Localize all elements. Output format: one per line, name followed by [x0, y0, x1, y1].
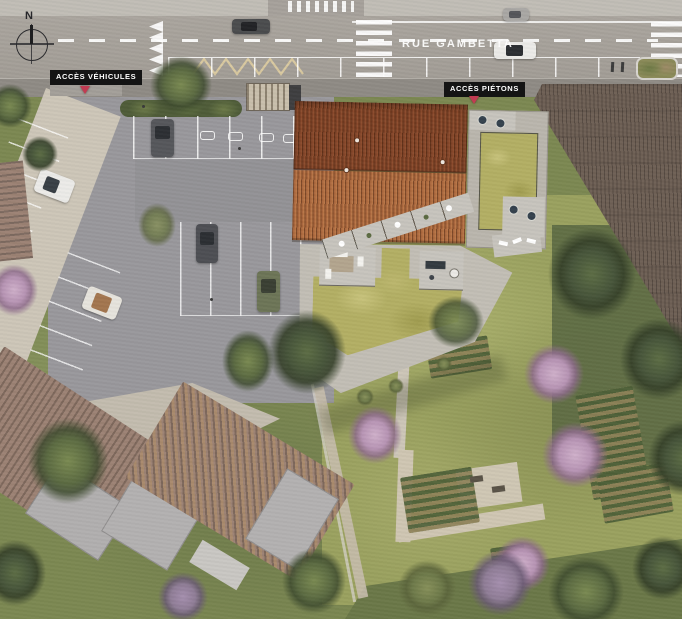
dining-table-dark — [425, 261, 445, 269]
tree-pink-garden-west — [348, 406, 402, 464]
site-plan-render: RUE GAMBETTA N ACCÈS VÉHICULES ACCÈS PIÉ… — [0, 0, 682, 619]
dining-chair-dot — [429, 275, 434, 280]
access-pedestrians-label: ACCÈS PIÉTONS — [444, 82, 525, 97]
vegetable-beds-west — [400, 467, 480, 534]
parked-car-gray-1 — [151, 119, 174, 157]
tree-west-strip-2 — [22, 136, 58, 172]
north-parked-car-glass — [509, 11, 521, 18]
parked-car-gray-2-glass — [200, 232, 214, 245]
loungers-terrace — [492, 230, 542, 258]
parked-car-gray-1-glass — [155, 126, 170, 139]
parked-car-tan-roof-top — [91, 292, 113, 313]
roof-chimney-3 — [343, 167, 349, 173]
compass-north-label: N — [25, 10, 33, 22]
compass-needle — [30, 25, 34, 44]
tree-purple-south — [468, 550, 532, 616]
north-parked-car — [503, 8, 529, 21]
parking-bay-lines — [168, 57, 640, 77]
pedestrian-dot-3 — [210, 298, 213, 301]
roof-chimney-2 — [440, 159, 446, 165]
roof-chimney-1 — [354, 137, 360, 143]
access-pedestrians-marker — [469, 96, 479, 104]
motorcycle-mark-1 — [611, 62, 614, 72]
access-vehicles-label: ACCÈS VÉHICULES — [50, 70, 142, 85]
tree-lawn-west-big — [28, 418, 108, 504]
dining-table-round — [449, 268, 459, 278]
access-vehicles-marker — [80, 86, 90, 94]
street-car-dark — [232, 19, 270, 34]
terrace-table-2 — [495, 118, 505, 128]
planter-island — [636, 57, 678, 80]
street-name: RUE GAMBETTA — [402, 38, 514, 50]
parked-car-olive — [257, 271, 280, 312]
balcony-plant-2 — [423, 214, 429, 220]
pedestrian-dot-2 — [238, 147, 241, 150]
tree-east-1 — [548, 228, 636, 320]
terrace-sofa-side — [325, 269, 331, 279]
shrub-building-edge-1 — [356, 388, 374, 406]
road-edge-line — [352, 21, 682, 23]
balcony-plant-1 — [366, 232, 372, 238]
carshare-symbol-2 — [228, 132, 243, 141]
lounger-2 — [512, 237, 522, 244]
motorcycle-mark-2 — [621, 62, 624, 72]
street-car-dark-glass — [241, 22, 257, 31]
east-wing-terrace-north — [469, 111, 515, 131]
lounger-3 — [526, 238, 536, 244]
shrub-building-edge-2 — [388, 378, 404, 394]
compass: N — [10, 10, 58, 68]
parked-car-gray-2 — [196, 224, 218, 263]
tree-lawn-south-1 — [282, 548, 346, 614]
tree-south-band-1 — [398, 560, 456, 616]
tree-parking-south — [222, 330, 274, 392]
tree-sidewalk — [150, 56, 212, 114]
tree-pink-garden-1 — [524, 344, 584, 404]
tree-pink-garden-2 — [542, 422, 608, 488]
tree-boundary-big — [268, 310, 346, 394]
balcony-table-3 — [445, 204, 453, 212]
balcony-table-1 — [338, 240, 346, 248]
south-wing-terrace-east — [419, 251, 464, 291]
tree-south-band-2 — [548, 556, 624, 619]
parked-car-olive-glass — [261, 279, 276, 293]
tree-garden-north — [428, 296, 484, 348]
terrace-table-3 — [509, 205, 519, 215]
carshare-symbol-1 — [200, 131, 215, 140]
side-street-crosswalk — [288, 1, 354, 12]
pedestrian-dot-1 — [142, 105, 145, 108]
terrace-chair — [357, 256, 363, 266]
terrace-rug — [329, 256, 353, 272]
carshare-symbol-3 — [259, 133, 274, 142]
bike-shelter — [246, 83, 290, 111]
terrace-table-1 — [477, 115, 487, 125]
lounger-1 — [498, 240, 508, 246]
shrub-parking-path — [138, 203, 176, 247]
balcony-table-2 — [394, 221, 402, 229]
parked-car-white-glass — [42, 176, 60, 194]
terrace-table-4 — [526, 211, 536, 221]
shrub-building-edge-3 — [436, 356, 452, 372]
tree-purple-lawn — [158, 572, 208, 619]
